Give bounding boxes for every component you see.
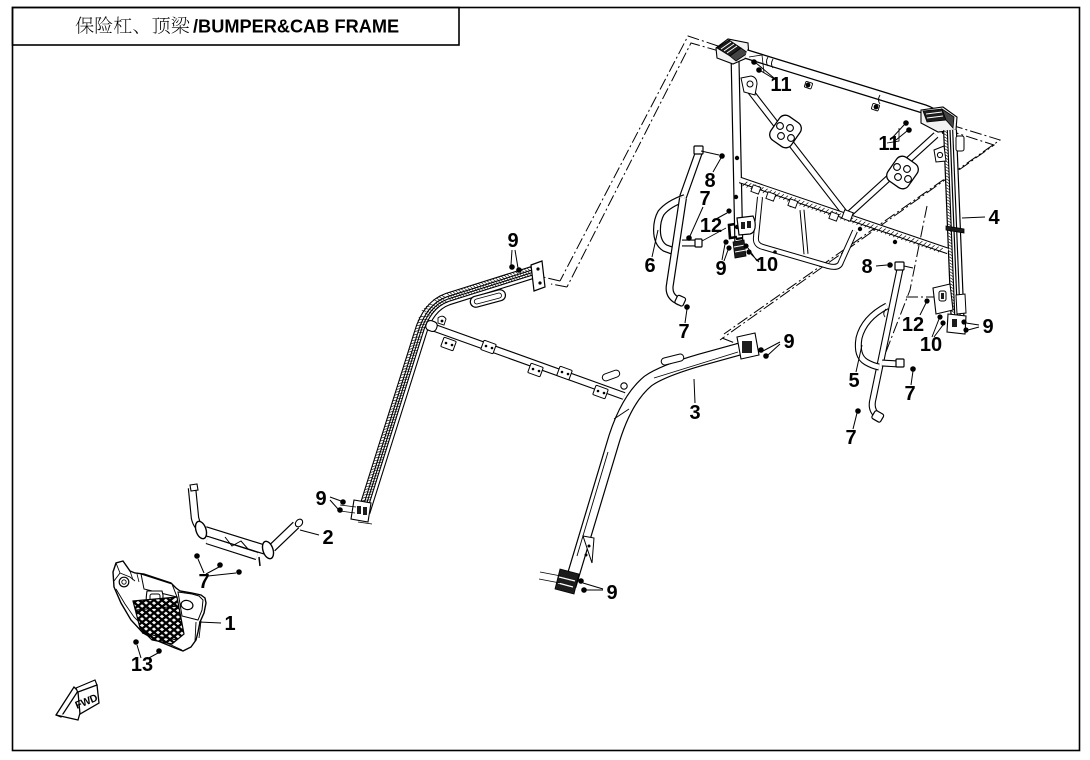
svg-text:3: 3 (689, 402, 700, 424)
svg-text:9: 9 (507, 230, 518, 252)
svg-text:7: 7 (904, 383, 915, 405)
svg-text:9: 9 (783, 331, 794, 353)
svg-text:11: 11 (878, 133, 899, 155)
svg-text:1: 1 (224, 613, 235, 635)
svg-text:13: 13 (131, 654, 153, 676)
svg-text:4: 4 (988, 207, 1000, 229)
svg-text:12: 12 (902, 314, 924, 336)
svg-text:9: 9 (982, 316, 993, 338)
svg-text:10: 10 (920, 334, 942, 356)
svg-text:7: 7 (678, 321, 689, 343)
svg-text:11: 11 (770, 74, 791, 96)
svg-text:12: 12 (700, 215, 722, 237)
svg-text:/BUMPER&CAB FRAME: /BUMPER&CAB FRAME (193, 17, 399, 37)
svg-text:2: 2 (322, 527, 333, 549)
svg-text:6: 6 (644, 255, 655, 277)
svg-text:8: 8 (861, 256, 872, 278)
svg-text:7: 7 (699, 188, 710, 210)
svg-text:9: 9 (715, 258, 726, 280)
svg-text:9: 9 (315, 488, 326, 510)
svg-text:7: 7 (198, 571, 209, 593)
svg-text:10: 10 (756, 254, 778, 276)
svg-text:9: 9 (606, 582, 617, 604)
svg-text:7: 7 (845, 427, 856, 449)
svg-text:5: 5 (848, 370, 859, 392)
